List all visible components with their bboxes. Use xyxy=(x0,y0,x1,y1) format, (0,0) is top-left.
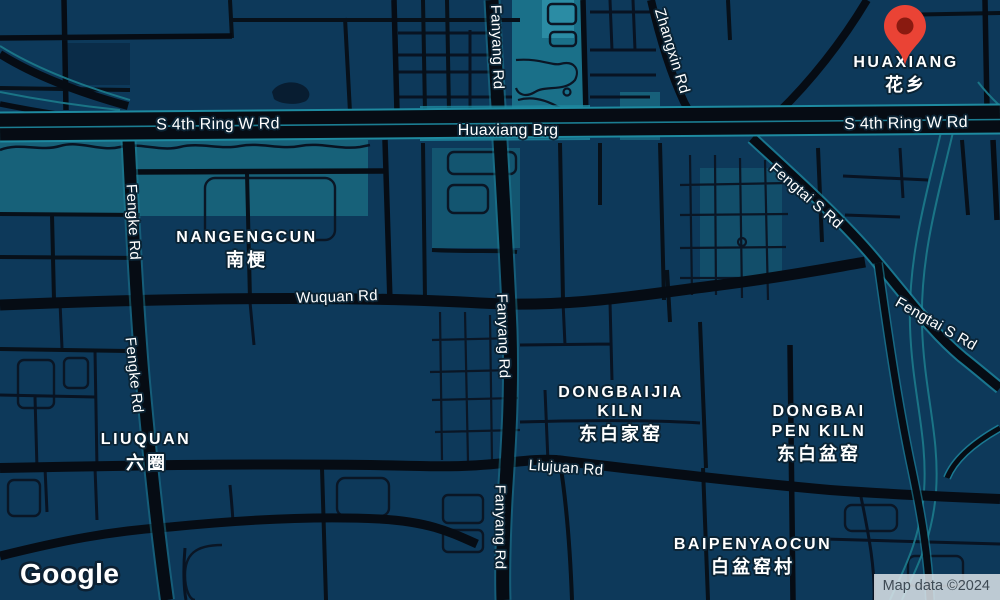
road-label-fanyang-3: Fanyang Rd xyxy=(492,485,509,570)
place-label-liuquan[interactable]: LIUQUAN xyxy=(101,431,191,449)
place-label-baipenyaocun-zh[interactable]: 白盆窑村 xyxy=(711,553,795,579)
road-label-huaxiang-brg: Huaxiang Brg xyxy=(458,122,559,140)
place-label-liuquan-zh[interactable]: 六圈 xyxy=(126,449,168,475)
road-label-s4th-ring-right: S 4th Ring W Rd xyxy=(844,114,968,134)
road-label-s4th-ring-left: S 4th Ring W Rd xyxy=(156,115,280,134)
pin-hole xyxy=(897,18,914,35)
map-canvas[interactable]: S 4th Ring W Rd Huaxiang Brg S 4th Ring … xyxy=(0,0,1000,600)
place-label-dongbaijia-kiln-1[interactable]: DONGBAIJIA xyxy=(558,384,683,402)
place-label-baipenyaocun[interactable]: BAIPENYAOCUN xyxy=(674,536,832,554)
road-label-fanyang-1: Fanyang Rd xyxy=(487,4,507,89)
place-label-dongbaijia-kiln-zh[interactable]: 东白家窑 xyxy=(579,420,663,446)
place-label-dongbai-pen-kiln-1[interactable]: DONGBAI xyxy=(772,403,865,421)
location-pin[interactable] xyxy=(881,3,929,67)
place-label-huaxiang-zh[interactable]: 花乡 xyxy=(885,71,927,97)
place-label-nangengcun[interactable]: NANGENGCUN xyxy=(176,229,317,247)
road-label-wuquan: Wuquan Rd xyxy=(296,287,378,307)
google-logo[interactable]: Google xyxy=(20,558,119,590)
place-label-dongbai-pen-kiln-zh[interactable]: 东白盆窑 xyxy=(777,440,861,466)
place-label-dongbaijia-kiln-2[interactable]: KILN xyxy=(597,403,644,421)
road-label-fanyang-2: Fanyang Rd xyxy=(493,293,513,378)
pin-body xyxy=(884,5,926,65)
place-label-dongbai-pen-kiln-2[interactable]: PEN KILN xyxy=(772,423,867,441)
place-label-nangengcun-zh[interactable]: 南梗 xyxy=(226,246,268,272)
map-attribution: Map data ©2024 xyxy=(874,574,1000,600)
